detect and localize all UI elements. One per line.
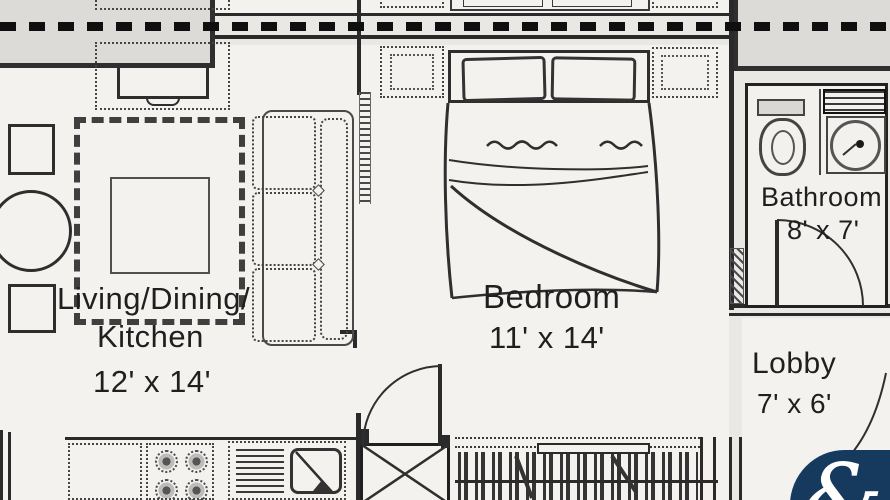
kitchen-left-wall-inner bbox=[8, 432, 11, 500]
stove-burner-3 bbox=[155, 479, 178, 500]
upper-unit-wall bbox=[215, 13, 733, 16]
kitchen-counter-section bbox=[68, 443, 142, 500]
lobby-top-wall-line bbox=[729, 313, 890, 316]
upper-unit-pillow-right bbox=[552, 0, 632, 7]
toilet-tank bbox=[757, 99, 805, 116]
lobby-label: Lobby bbox=[752, 348, 836, 380]
bathroom-faucet bbox=[856, 140, 864, 148]
kitchen-left-wall-outer bbox=[0, 430, 3, 500]
stove-burner-2 bbox=[185, 450, 208, 473]
upper-unit-cabinet-partial bbox=[652, 0, 718, 8]
kitchen-counter-edge bbox=[65, 437, 356, 440]
utility-shaft bbox=[360, 443, 450, 500]
lobby-dims: 7' x 6' bbox=[757, 389, 832, 418]
lobby-top-wall-pier bbox=[730, 248, 744, 304]
sofa-backrest bbox=[320, 118, 348, 340]
pillow-right bbox=[551, 56, 637, 101]
drainboard bbox=[236, 449, 284, 493]
bathroom-dims: 8' x 7' bbox=[787, 216, 859, 244]
shaft-tab-left bbox=[360, 429, 369, 445]
living-room-label-line2: Kitchen bbox=[97, 321, 204, 354]
sofa-cushion-1 bbox=[252, 116, 316, 190]
living-bedroom-wall-hatched bbox=[359, 92, 371, 204]
lobby-left-wall bbox=[729, 437, 742, 500]
structural-block-top-right bbox=[733, 0, 890, 71]
bathroom-door-leaf bbox=[775, 220, 779, 306]
ampersand-logo: & bbox=[802, 452, 884, 500]
living-room-dims: 12' x 14' bbox=[93, 366, 211, 399]
toilet-bowl-inner bbox=[771, 130, 795, 165]
upper-unit-console-partial bbox=[95, 0, 230, 10]
upper-unit-nightstand-partial bbox=[380, 0, 444, 8]
unit-boundary-dashed-line bbox=[0, 22, 890, 31]
tv bbox=[117, 64, 209, 99]
nightstand-right-inner bbox=[661, 55, 709, 90]
sofa-cushion-2 bbox=[252, 192, 316, 266]
bathroom-label: Bathroom bbox=[761, 183, 882, 211]
main-top-wall bbox=[215, 35, 733, 39]
nightstand-left-inner bbox=[390, 54, 434, 90]
bedroom-door-leaf bbox=[438, 364, 442, 446]
brand-watermark: & bbox=[790, 450, 890, 500]
stove-burner-4 bbox=[185, 479, 208, 500]
bedroom-dims: 11' x 14' bbox=[489, 322, 605, 355]
sink-basin bbox=[290, 448, 342, 494]
hanging-clothes bbox=[458, 452, 698, 500]
floorplan-scan: Living/Dining/ Kitchen 12' x 14' Bedroom… bbox=[0, 0, 890, 500]
dining-chair-bottom bbox=[8, 284, 56, 333]
bathroom-divider bbox=[819, 89, 821, 175]
living-room-label-line1: Living/Dining/ bbox=[57, 283, 250, 316]
living-bedroom-wall bbox=[357, 0, 361, 95]
bedroom-label: Bedroom bbox=[483, 280, 620, 315]
dining-chair-top bbox=[8, 124, 55, 175]
shaft-tab-right bbox=[441, 435, 450, 448]
bathroom-vanity-shelf bbox=[823, 89, 886, 114]
closet-door-handle bbox=[537, 443, 650, 454]
tv-stand bbox=[146, 98, 180, 106]
upper-unit-pillow-left bbox=[463, 0, 543, 7]
sofa-cushion-3 bbox=[252, 268, 316, 342]
pillow-left bbox=[461, 56, 546, 102]
rug-inner-panel bbox=[110, 177, 210, 274]
stove-burner-1 bbox=[155, 450, 178, 473]
closet-right-wall bbox=[700, 437, 716, 500]
closet-rod bbox=[455, 480, 718, 483]
